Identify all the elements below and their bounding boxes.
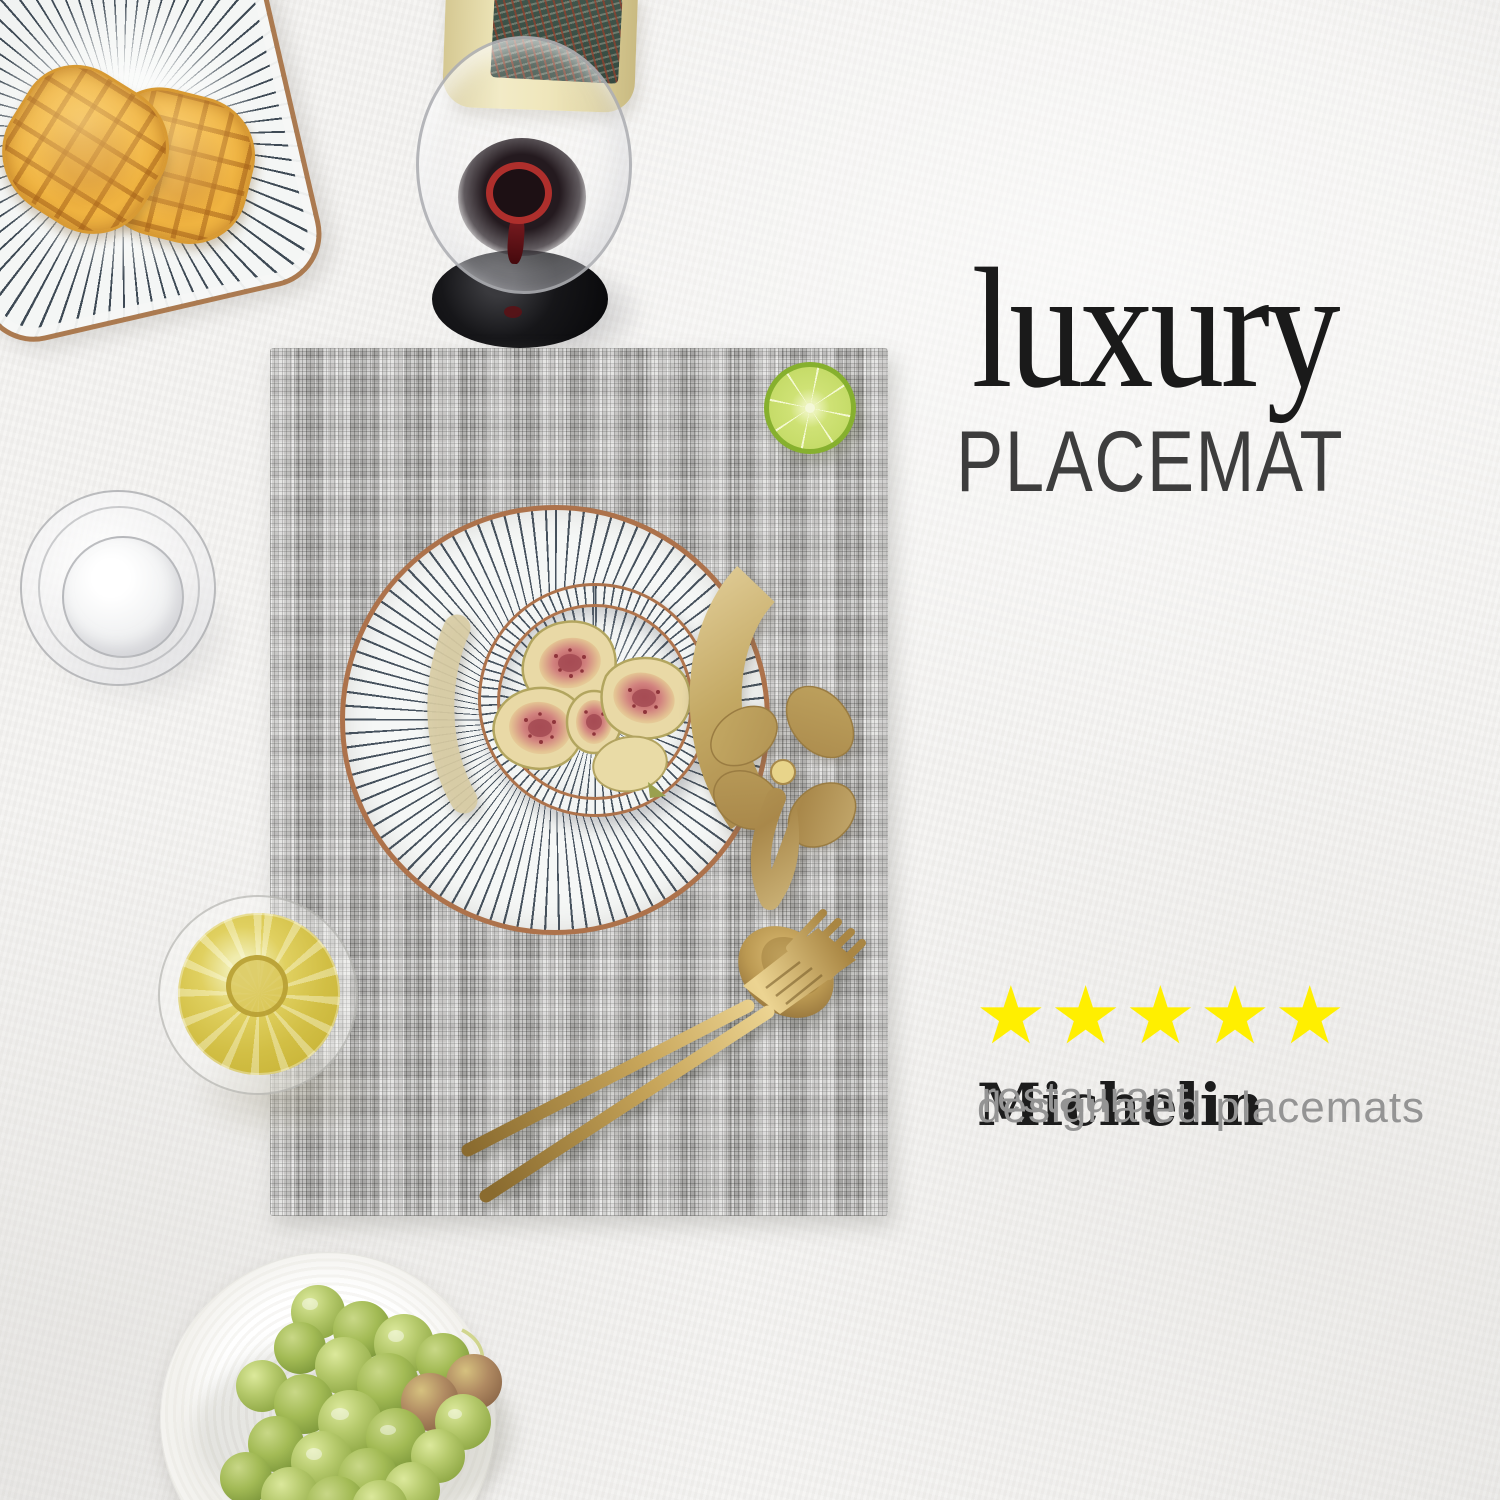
product-photo-scene: luxury PLACEMAT ★★★★★ Michelin restauran…	[0, 0, 1500, 1500]
photo-vignette	[0, 0, 1500, 1500]
